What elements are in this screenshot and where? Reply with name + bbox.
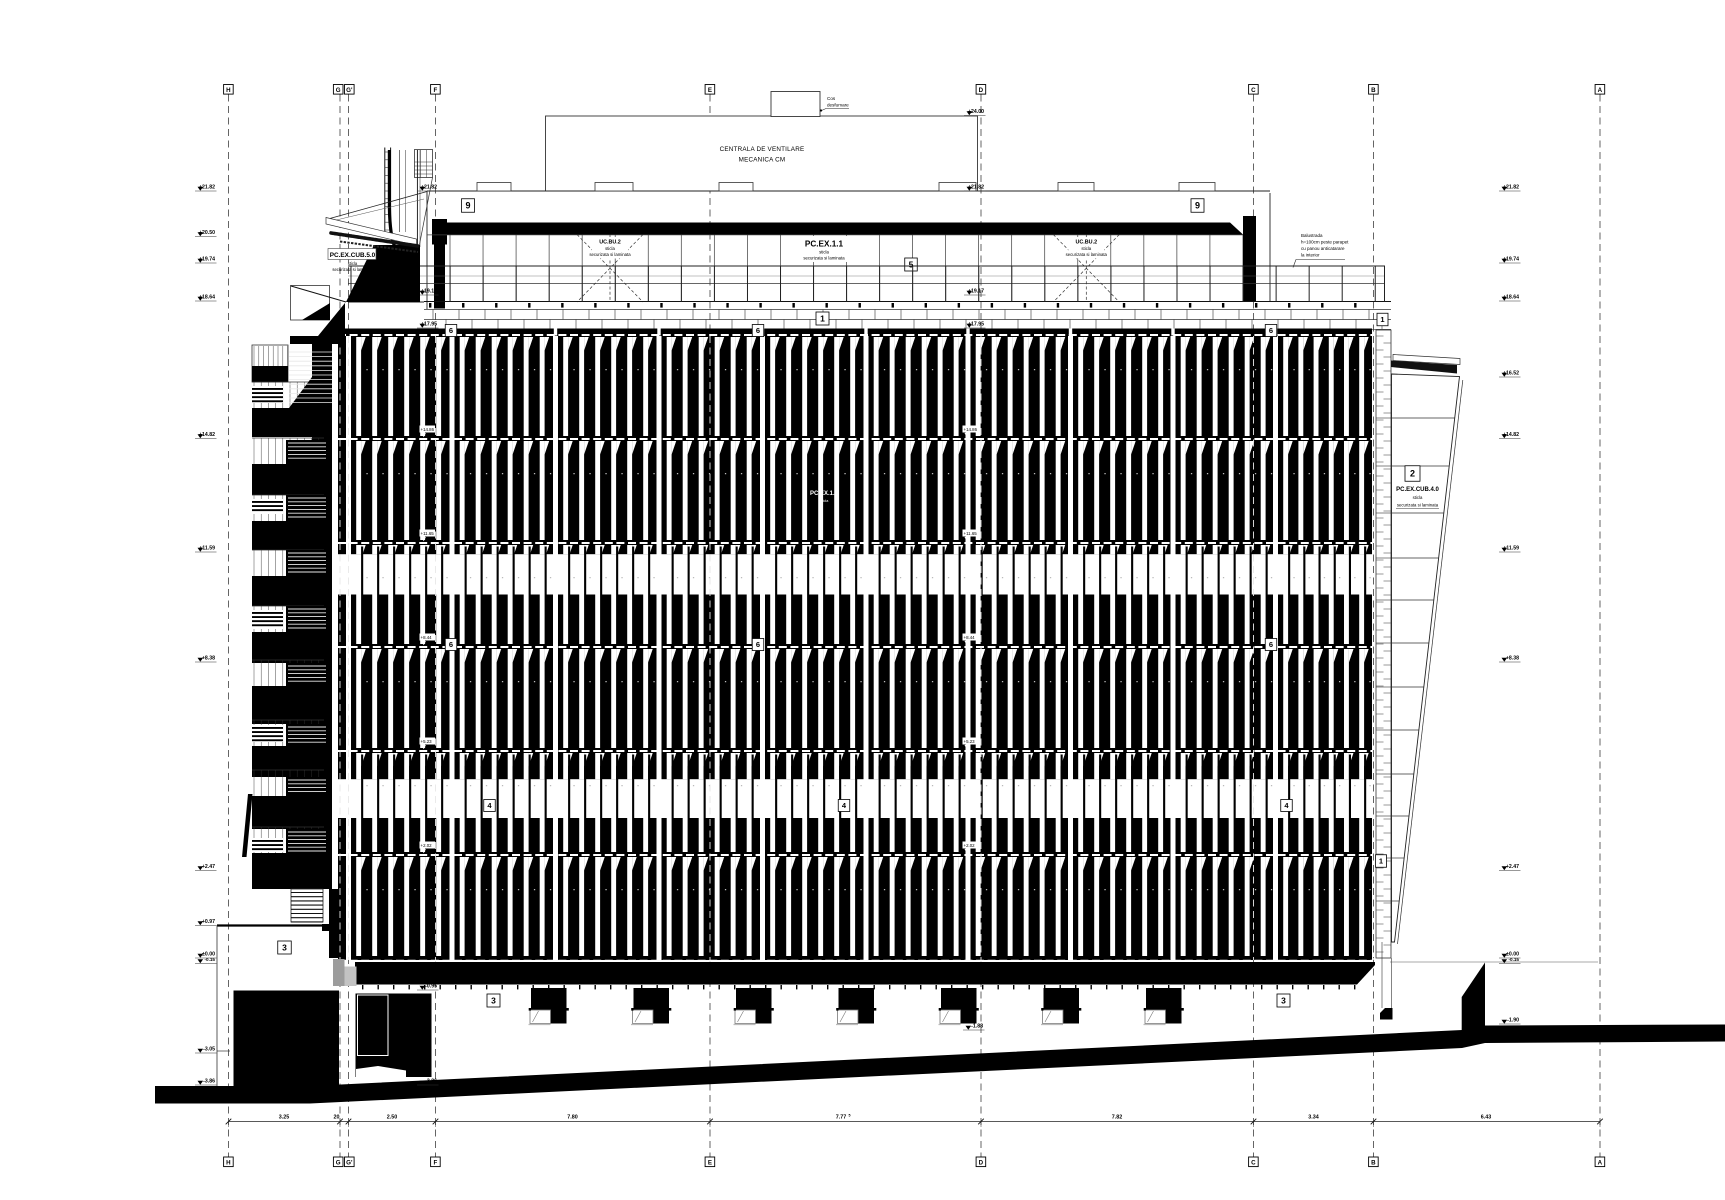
svg-text:+14.86: +14.86 (421, 427, 435, 432)
svg-text:6: 6 (756, 326, 760, 335)
svg-text:-3.86: -3.86 (203, 1079, 215, 1085)
svg-text:3: 3 (1281, 996, 1286, 1006)
svg-text:+0.97: +0.97 (202, 919, 215, 925)
svg-text:3.34: 3.34 (1308, 1115, 1319, 1121)
svg-text:+11.65: +11.65 (421, 531, 435, 536)
svg-text:-0.15: -0.15 (1509, 957, 1520, 962)
svg-text:desfumare: desfumare (827, 103, 849, 108)
svg-text:+2.47: +2.47 (202, 864, 215, 870)
svg-text:PC.EX.1.4: PC.EX.1.4 (810, 491, 839, 497)
svg-text:+8.38: +8.38 (1506, 656, 1519, 662)
svg-text:1: 1 (1379, 857, 1383, 866)
svg-text:UC.BU.2: UC.BU.2 (599, 240, 621, 246)
svg-text:3: 3 (491, 996, 496, 1006)
svg-text:sticla: sticla (820, 499, 830, 503)
svg-text:6: 6 (1269, 326, 1273, 335)
svg-text:B: B (1371, 87, 1376, 94)
svg-text:1: 1 (1380, 315, 1384, 324)
svg-text:-3.05: -3.05 (203, 1047, 215, 1053)
svg-text:F: F (434, 87, 438, 94)
svg-text:MECANICA CM: MECANICA CM (739, 157, 786, 164)
svg-text:A: A (1598, 1160, 1603, 1167)
svg-text:+8.44: +8.44 (421, 635, 433, 640)
svg-text:securizata si laminata: securizata si laminata (589, 252, 631, 257)
svg-text:F: F (434, 1160, 438, 1167)
svg-text:6.43: 6.43 (1481, 1115, 1492, 1121)
svg-text:PC.EX.CUB.4.0: PC.EX.CUB.4.0 (1396, 487, 1439, 493)
svg-text:H: H (226, 87, 231, 94)
svg-text:H: H (226, 1160, 231, 1167)
svg-text:h=100cm peste parapet: h=100cm peste parapet (1301, 240, 1349, 245)
svg-text:+2.02: +2.02 (964, 843, 976, 848)
svg-text:E: E (708, 87, 712, 94)
svg-text:6: 6 (449, 326, 453, 335)
svg-text:securizata si laminata: securizata si laminata (332, 267, 373, 272)
svg-text:sticla: sticla (605, 246, 615, 251)
svg-text:-1.88: -1.88 (971, 1024, 983, 1030)
svg-text:+2.02: +2.02 (421, 843, 433, 848)
svg-text:C: C (1251, 1160, 1256, 1167)
svg-text:CENTRALA DE VENTILARE: CENTRALA DE VENTILARE (720, 146, 805, 153)
svg-text:securizata si laminata: securizata si laminata (803, 256, 845, 261)
svg-text:2.50: 2.50 (387, 1115, 398, 1121)
svg-text:securizata si laminata: securizata si laminata (1397, 503, 1439, 508)
svg-text:sticla: sticla (1413, 495, 1423, 500)
svg-text:-0.95: -0.95 (425, 984, 437, 990)
svg-text:+5.23: +5.23 (421, 739, 433, 744)
svg-text:20: 20 (334, 1115, 340, 1121)
svg-text:+2.47: +2.47 (1506, 864, 1519, 870)
svg-text:-0.15: -0.15 (205, 957, 216, 962)
svg-text:6: 6 (449, 640, 453, 649)
svg-text:securizata si laminata: securizata si laminata (1066, 252, 1108, 257)
svg-text:+5.23: +5.23 (964, 739, 976, 744)
svg-text:G: G (336, 1160, 341, 1167)
svg-text:D: D (979, 1160, 984, 1167)
svg-text:+8.44: +8.44 (964, 635, 976, 640)
svg-text:7.82: 7.82 (1112, 1115, 1123, 1121)
svg-text:la interior: la interior (1301, 253, 1320, 258)
svg-text:9: 9 (1195, 201, 1200, 211)
svg-text:PC.EX.1.1: PC.EX.1.1 (805, 240, 844, 249)
svg-text:6: 6 (756, 640, 760, 649)
svg-text:sticla: sticla (348, 261, 358, 266)
svg-text:7.80: 7.80 (567, 1115, 578, 1121)
svg-text:1: 1 (820, 314, 825, 324)
svg-text:A: A (1598, 87, 1603, 94)
svg-text:-1.90: -1.90 (1507, 1018, 1519, 1024)
svg-text:UC.BU.2: UC.BU.2 (1076, 240, 1098, 246)
svg-text:-3.86: -3.86 (425, 1079, 437, 1085)
svg-text:B: B (1371, 1160, 1376, 1167)
svg-text:5: 5 (849, 1114, 851, 1118)
svg-text:cu panou anticatarare: cu panou anticatarare (1301, 246, 1345, 251)
svg-text:+8.38: +8.38 (202, 656, 215, 662)
svg-text:Balustrada: Balustrada (1301, 233, 1323, 238)
svg-text:PC.EX.CUB.5.0: PC.EX.CUB.5.0 (330, 252, 376, 259)
svg-text:G': G' (346, 87, 353, 94)
svg-text:G': G' (346, 1160, 353, 1167)
svg-text:C: C (1251, 87, 1256, 94)
svg-text:7.77: 7.77 (836, 1115, 847, 1121)
svg-text:G: G (336, 87, 341, 94)
svg-text:3.25: 3.25 (279, 1115, 290, 1121)
svg-text:3: 3 (282, 943, 287, 953)
svg-text:sticla: sticla (1081, 246, 1091, 251)
svg-text:sticla: sticla (819, 250, 829, 255)
svg-text:6: 6 (1269, 640, 1273, 649)
svg-text:D: D (979, 87, 984, 94)
svg-text:2: 2 (1410, 469, 1415, 479)
svg-text:Cos: Cos (827, 96, 836, 101)
svg-text:E: E (708, 1160, 712, 1167)
svg-text:9: 9 (465, 201, 470, 211)
svg-text:+14.86: +14.86 (964, 427, 978, 432)
svg-text:+11.65: +11.65 (964, 531, 978, 536)
